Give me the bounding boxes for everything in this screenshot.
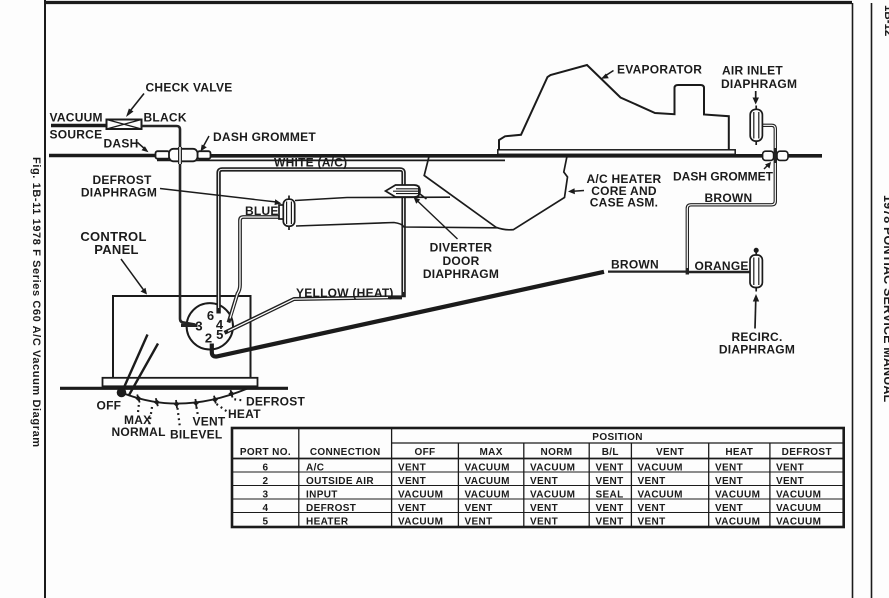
svg-text:6: 6 (207, 308, 214, 323)
svg-text:5: 5 (216, 327, 223, 342)
svg-text:DASH GROMMET: DASH GROMMET (673, 170, 774, 184)
svg-text:NORMAL: NORMAL (112, 425, 166, 439)
svg-text:MAX: MAX (479, 447, 502, 458)
svg-text:HEAT: HEAT (725, 447, 753, 458)
svg-text:HEAT: HEAT (228, 407, 261, 421)
svg-text:DEFROST: DEFROST (306, 503, 356, 514)
svg-text:2: 2 (262, 476, 268, 487)
svg-text:OFF: OFF (97, 399, 122, 413)
svg-text:VACUUM: VACUUM (530, 490, 575, 501)
svg-text:VENT: VENT (465, 503, 493, 514)
svg-text:PANEL: PANEL (94, 242, 139, 257)
svg-text:OFF: OFF (414, 447, 435, 458)
svg-text:DIAPHRAGM: DIAPHRAGM (423, 267, 499, 281)
svg-text:VACUUM: VACUUM (398, 517, 443, 528)
svg-text:VENT: VENT (596, 476, 624, 487)
svg-text:VENT: VENT (776, 476, 804, 487)
svg-text:VENT: VENT (465, 517, 493, 528)
svg-text:VENT: VENT (638, 476, 666, 487)
svg-text:DIVERTER: DIVERTER (430, 241, 493, 255)
svg-text:5: 5 (262, 517, 268, 528)
svg-text:SEAL: SEAL (596, 490, 624, 501)
svg-text:DIAPHRAGM: DIAPHRAGM (81, 186, 157, 200)
svg-text:INPUT: INPUT (306, 490, 338, 501)
svg-text:VACUUM: VACUUM (465, 463, 510, 474)
svg-text:VENT: VENT (638, 503, 666, 514)
svg-text:VENT: VENT (596, 463, 624, 474)
svg-text:BLUE: BLUE (245, 204, 279, 218)
svg-text:VACUUM: VACUUM (398, 490, 443, 501)
svg-text:DIAPHRAGM: DIAPHRAGM (721, 77, 797, 91)
svg-text:VENT: VENT (656, 447, 684, 458)
svg-text:VENT: VENT (398, 476, 426, 487)
svg-text:VENT: VENT (193, 415, 226, 429)
svg-text:4: 4 (262, 503, 268, 514)
svg-text:2: 2 (205, 331, 212, 346)
svg-text:CASE ASM.: CASE ASM. (590, 196, 658, 210)
svg-text:DEFROST: DEFROST (246, 395, 306, 409)
svg-text:CONNECTION: CONNECTION (310, 447, 381, 458)
svg-text:DOOR: DOOR (443, 254, 480, 268)
svg-text:B/L: B/L (602, 447, 619, 458)
svg-text:1978 PONTIAC SERVICE MANUAL: 1978 PONTIAC SERVICE MANUAL (881, 195, 889, 403)
svg-text:VACUUM: VACUUM (776, 503, 821, 514)
svg-text:POSITION: POSITION (592, 432, 643, 443)
svg-text:WHITE (A/C): WHITE (A/C) (274, 156, 347, 170)
svg-text:CHECK VALVE: CHECK VALVE (146, 81, 233, 95)
svg-text:VENT: VENT (530, 503, 558, 514)
svg-text:VACUUM: VACUUM (638, 490, 683, 501)
svg-text:A/C: A/C (306, 463, 324, 474)
svg-text:3: 3 (262, 490, 268, 501)
svg-text:VENT: VENT (776, 463, 804, 474)
svg-text:AIR INLET: AIR INLET (722, 64, 783, 78)
svg-text:6: 6 (262, 463, 268, 474)
svg-text:DEFROST: DEFROST (782, 447, 832, 458)
svg-text:ORANGE: ORANGE (695, 259, 749, 273)
svg-text:VENT: VENT (398, 503, 426, 514)
svg-text:SOURCE: SOURCE (50, 128, 103, 142)
svg-text:VACUUM: VACUUM (465, 476, 510, 487)
svg-text:VENT: VENT (638, 517, 666, 528)
svg-text:VACUUM: VACUUM (776, 517, 821, 528)
svg-text:VACUUM: VACUUM (50, 111, 103, 125)
svg-text:VENT: VENT (715, 463, 743, 474)
svg-text:VACUUM: VACUUM (530, 463, 575, 474)
svg-text:DIAPHRAGM: DIAPHRAGM (719, 343, 795, 357)
svg-text:VACUUM: VACUUM (715, 490, 760, 501)
svg-text:EVAPORATOR: EVAPORATOR (617, 63, 702, 77)
svg-text:VENT: VENT (398, 463, 426, 474)
svg-text:DASH GROMMET: DASH GROMMET (213, 130, 316, 144)
svg-text:VACUUM: VACUUM (715, 517, 760, 528)
svg-text:VENT: VENT (530, 517, 558, 528)
svg-text:1B-12: 1B-12 (882, 5, 889, 36)
svg-text:BLACK: BLACK (144, 111, 187, 125)
svg-text:VENT: VENT (530, 476, 558, 487)
svg-text:VENT: VENT (715, 476, 743, 487)
svg-text:BROWN: BROWN (611, 258, 659, 272)
svg-text:OUTSIDE AIR: OUTSIDE AIR (306, 476, 374, 487)
svg-text:YELLOW (HEAT): YELLOW (HEAT) (296, 286, 394, 300)
svg-text:VACUUM: VACUUM (638, 463, 683, 474)
svg-text:VENT: VENT (596, 503, 624, 514)
svg-text:VENT: VENT (596, 517, 624, 528)
svg-text:VACUUM: VACUUM (465, 490, 510, 501)
svg-text:BILEVEL: BILEVEL (170, 428, 222, 442)
svg-text:DASH: DASH (104, 137, 139, 151)
svg-text:PORT NO.: PORT NO. (240, 447, 291, 458)
svg-text:NORM: NORM (541, 447, 573, 458)
svg-text:VENT: VENT (715, 503, 743, 514)
svg-text:VACUUM: VACUUM (776, 490, 821, 501)
svg-text:3: 3 (195, 319, 202, 334)
svg-text:Fig. 1B-11 1978 F Series C60 A: Fig. 1B-11 1978 F Series C60 A/C Vacuum … (30, 157, 42, 448)
svg-text:HEATER: HEATER (306, 517, 349, 528)
svg-text:BROWN: BROWN (705, 191, 753, 205)
